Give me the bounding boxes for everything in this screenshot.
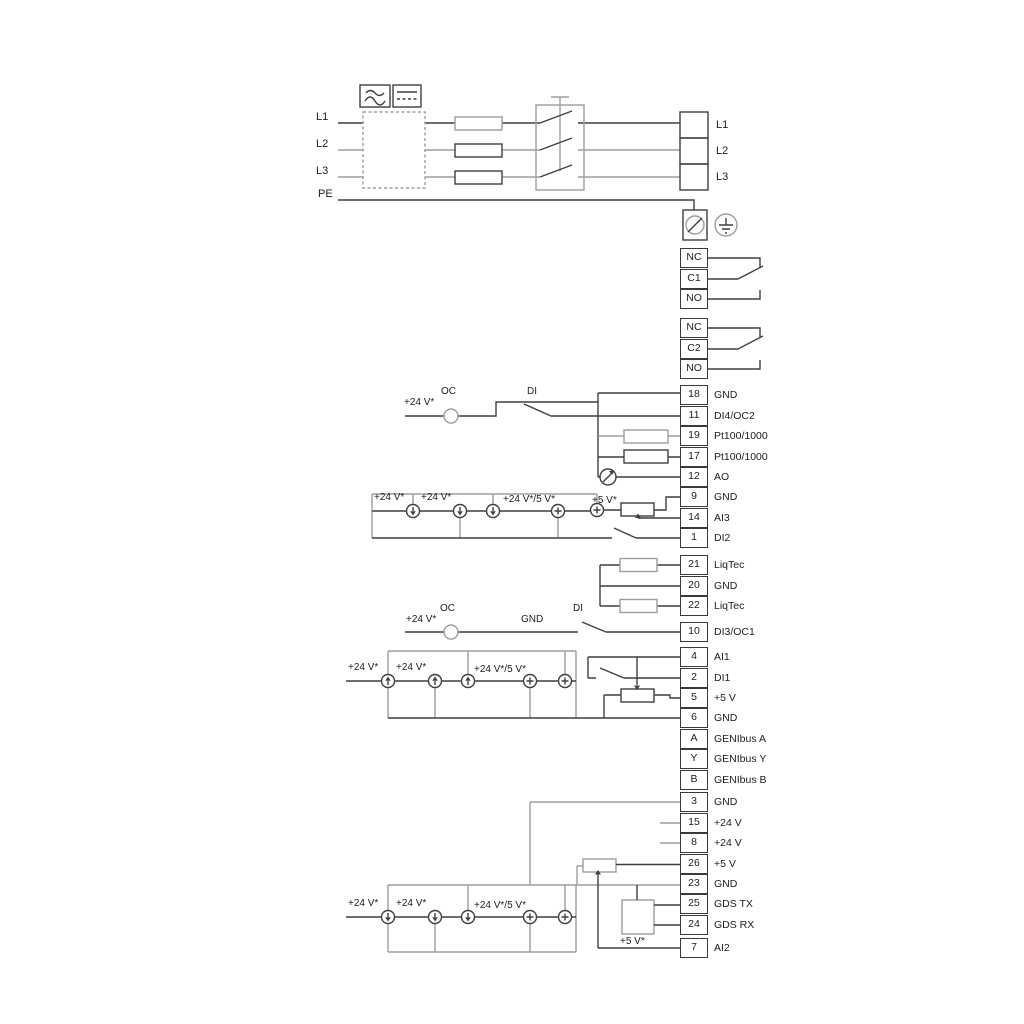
voltage-label: +24 V*	[404, 397, 434, 408]
relay-terminal: C1	[680, 269, 708, 289]
terminal-label: GND	[714, 796, 737, 808]
terminal-label: GDS TX	[714, 898, 753, 910]
terminal-label: L3	[716, 171, 728, 183]
terminal-number: 9	[680, 487, 708, 507]
terminal-label: +24 V	[714, 837, 742, 849]
fuse-icon	[455, 171, 502, 184]
oc-label: OC	[440, 603, 455, 614]
potentiometer-icon	[583, 859, 616, 872]
terminal-label: LiqTec	[714, 600, 744, 612]
terminal-label: GENIbus Y	[714, 753, 766, 765]
fuse-icon	[455, 117, 502, 130]
terminal-label: L1	[716, 119, 728, 131]
voltage-label: +24 V*/5 V*	[503, 494, 555, 505]
relay-terminal: NC	[680, 248, 708, 268]
terminal-number: 6	[680, 708, 708, 728]
terminal-number: B	[680, 770, 708, 790]
terminal-number: 26	[680, 854, 708, 874]
terminal-label: GND	[714, 389, 737, 401]
oc-label: OC	[441, 386, 456, 397]
terminal-label: DI1	[714, 672, 730, 684]
terminal-label: GND	[714, 712, 737, 724]
terminal-number: 19	[680, 426, 708, 446]
terminal-number: 25	[680, 894, 708, 914]
mains-label-l2: L2	[316, 138, 328, 150]
terminal-label: GND	[714, 878, 737, 890]
mains-section	[338, 85, 737, 240]
terminal-label: LiqTec	[714, 559, 744, 571]
terminal-label: GENIbus B	[714, 774, 767, 786]
ac-symbol-icon	[360, 85, 390, 107]
gds-sensor-box	[622, 900, 654, 934]
open-collector-icon	[444, 409, 458, 423]
terminal-number: 2	[680, 668, 708, 688]
terminal-number: 10	[680, 622, 708, 642]
terminal-label: AI1	[714, 651, 730, 663]
voltage-label: +24 V*	[396, 898, 426, 909]
resistor-icon	[620, 600, 657, 613]
terminal-number: 3	[680, 792, 708, 812]
di-label: DI	[527, 386, 537, 397]
pe-terminal-icon	[683, 210, 707, 240]
mains-label-l3: L3	[316, 165, 328, 177]
terminal-number: A	[680, 729, 708, 749]
relay-terminal: NC	[680, 318, 708, 338]
resistor-icon	[624, 430, 668, 443]
terminal-label: +5 V	[714, 692, 736, 704]
voltage-label: +24 V*/5 V*	[474, 900, 526, 911]
potentiometer-icon	[621, 689, 654, 702]
open-collector-icon	[444, 625, 458, 639]
terminal-number: Y	[680, 749, 708, 769]
terminal-number: 4	[680, 647, 708, 667]
voltage-label: +5 V*	[592, 495, 617, 506]
potentiometer-icon	[621, 503, 654, 516]
terminal-label: +24 V	[714, 817, 742, 829]
relay-terminal: NO	[680, 289, 708, 309]
analog-output-circuit	[598, 469, 680, 485]
terminal-number: 11	[680, 406, 708, 426]
voltage-label: +5 V*	[620, 936, 645, 947]
terminal-number: 15	[680, 813, 708, 833]
di-label: DI	[573, 603, 583, 614]
dc-symbol-icon	[393, 85, 421, 107]
voltage-label: +24 V*	[421, 492, 451, 503]
terminal-number: 5	[680, 688, 708, 708]
voltage-label: +24 V*/5 V*	[474, 664, 526, 675]
terminal-label: DI3/OC1	[714, 626, 755, 638]
voltage-label: +24 V*	[406, 614, 436, 625]
terminal-label: DI4/OC2	[714, 410, 755, 422]
terminal-number: 17	[680, 447, 708, 467]
terminal-number: 12	[680, 467, 708, 487]
voltage-label: +24 V*	[348, 898, 378, 909]
terminal-label: Pt100/1000	[714, 451, 768, 463]
pt100-sensor-circuit	[598, 430, 680, 463]
terminal-number: 1	[680, 528, 708, 548]
wiring-diagram: L1 L2 L3 PE L1 L2 L3 NC C1 NO NC C2 NO 1…	[0, 0, 1024, 1024]
ai2-signal-cluster	[346, 802, 680, 952]
voltage-label: +24 V*	[348, 662, 378, 673]
terminal-number: 21	[680, 555, 708, 575]
schematic-lines	[0, 0, 1024, 1024]
terminal-number: 24	[680, 915, 708, 935]
terminal-number: 8	[680, 833, 708, 853]
gnd-label: GND	[521, 614, 543, 625]
terminal-number: 14	[680, 508, 708, 528]
relay-terminal: NO	[680, 359, 708, 379]
voltage-label: +24 V*	[374, 492, 404, 503]
terminal-label: Pt100/1000	[714, 430, 768, 442]
relay-terminal: C2	[680, 339, 708, 359]
voltage-label: +24 V*	[396, 662, 426, 673]
terminal-label: GENIbus A	[714, 733, 766, 745]
terminal-label: +5 V	[714, 858, 736, 870]
terminal-number: 23	[680, 874, 708, 894]
resistor-icon	[624, 450, 668, 463]
relay2-contact-icon	[708, 328, 763, 369]
terminal-number: 20	[680, 576, 708, 596]
terminal-label: AI2	[714, 942, 730, 954]
mains-label-pe: PE	[318, 188, 333, 200]
liqtec-sensor-circuit	[600, 559, 680, 613]
terminal-label: AI3	[714, 512, 730, 524]
terminal-number: 22	[680, 596, 708, 616]
relay1-contact-icon	[708, 258, 763, 299]
filter-box	[363, 112, 425, 188]
terminal-number: 7	[680, 938, 708, 958]
terminal-label: GND	[714, 491, 737, 503]
terminal-label: GND	[714, 580, 737, 592]
terminal-label: L2	[716, 145, 728, 157]
terminal-label: GDS RX	[714, 919, 754, 931]
earth-icon	[715, 214, 737, 236]
digital-input-di4-circuit	[405, 393, 680, 477]
main-switch-icon	[536, 97, 584, 190]
terminal-label: AO	[714, 471, 729, 483]
terminal-number: 18	[680, 385, 708, 405]
mains-label-l1: L1	[316, 111, 328, 123]
fuse-icon	[455, 144, 502, 157]
terminal-label: DI2	[714, 532, 730, 544]
resistor-icon	[620, 559, 657, 572]
